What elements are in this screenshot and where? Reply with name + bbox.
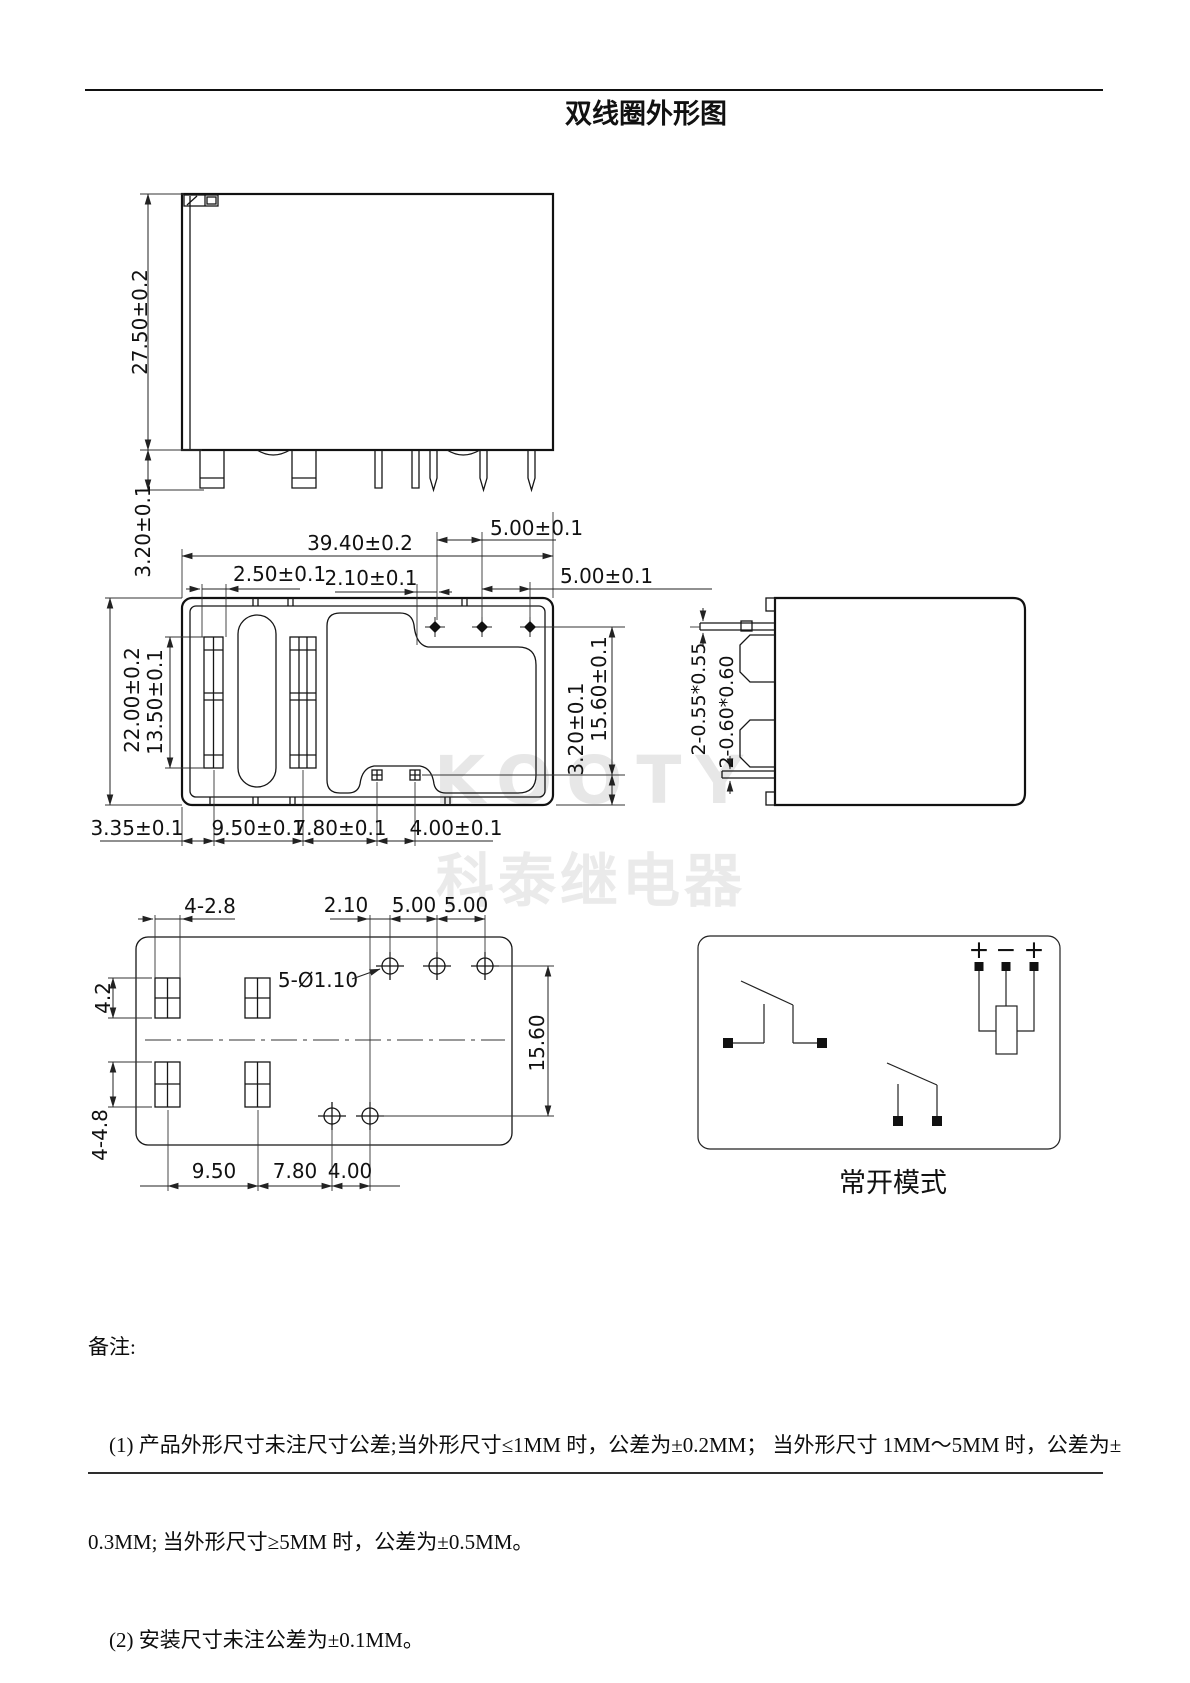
- datasheet-page: KOOTY 科泰继电器 双线圈外形图: [0, 0, 1190, 1683]
- note-line-2: 0.3MM; 当外形尺寸≥5MM 时，公差为±0.5MM。: [88, 1526, 1118, 1559]
- pcb-layout-view: 5-Ø1.10 4-2.8 2.10 5.00 5.00 4.2: [88, 893, 554, 1191]
- terminal-slot-column-1: [204, 637, 223, 768]
- dim-pitch-a: 5.00±0.1: [490, 516, 583, 540]
- dim-depth: 22.00±0.2: [120, 647, 144, 753]
- relay-case-side: [775, 598, 1025, 805]
- dim-335: 3.35±0.1: [90, 816, 183, 840]
- dim-bottom-width: 39.40±0.2: [307, 531, 413, 555]
- dim-front-height: 27.50±0.2: [128, 269, 152, 375]
- dim-pads-bottom: 4-4.8: [88, 1109, 112, 1161]
- square-post-markers: [372, 770, 420, 780]
- relay-case-front: [182, 194, 553, 450]
- dim-edge: 3.20±0.1: [564, 682, 588, 775]
- dim-780: 7.80±0.1: [293, 816, 386, 840]
- coil-symbol: + − +: [969, 935, 1045, 1054]
- dim-pin-large: 2-0.60*0.60: [716, 655, 738, 768]
- notes-label: 备注:: [88, 1331, 1118, 1364]
- side-tab-upper: [740, 635, 775, 682]
- dim-front-standoff: 3.20±0.1: [131, 484, 155, 577]
- dim-pin-small: 2-0.55*0.55: [688, 642, 710, 755]
- coil-slot: [238, 615, 276, 787]
- dim-42: 4.2: [91, 982, 115, 1014]
- notes-block: 备注: (1) 产品外形尺寸未注尺寸公差;当外形尺寸≤1MM 时，公差为±0.2…: [88, 1266, 1118, 1683]
- coil-minus: −: [996, 935, 1017, 964]
- dim-holes: 5-Ø1.10: [278, 968, 358, 992]
- side-pin-large: [722, 771, 775, 778]
- coil-plus-left: +: [969, 935, 990, 964]
- dim-500b: 5.00: [444, 893, 489, 917]
- dim-pcb-950: 9.50: [192, 1159, 237, 1183]
- note-line-1: (1) 产品外形尺寸未注尺寸公差;当外形尺寸≤1MM 时，公差为±0.2MM； …: [88, 1429, 1118, 1462]
- dim-pads-top: 4-2.8: [184, 894, 236, 918]
- bottom-view: 39.40±0.2 5.00±0.1 5.00±0.1 2.50±0.1 2.1…: [90, 512, 712, 846]
- contact-switch-2: [887, 1063, 942, 1126]
- pcb-pads: [155, 978, 270, 1107]
- dim-slot-span: 13.50±0.1: [143, 649, 167, 755]
- coil-plus-right: +: [1024, 935, 1045, 964]
- side-view: 2-0.55*0.55 2-0.60*0.60: [688, 598, 1025, 805]
- dim-pitch-b: 5.00±0.1: [560, 564, 653, 588]
- dim-offset: 2.10±0.1: [324, 566, 417, 590]
- page-title: 双线圈外形图: [565, 99, 727, 129]
- contact-cavity: [327, 613, 536, 793]
- dim-210: 2.10: [324, 893, 369, 917]
- contact-switch-1: [723, 981, 827, 1048]
- terminal-slot-column-2: [290, 637, 316, 768]
- dim-row-span: 15.60±0.1: [587, 636, 611, 742]
- dim-1560: 15.60: [525, 1014, 549, 1071]
- note-line-3: (2) 安装尺寸未注公差为±0.1MM。: [88, 1624, 1118, 1657]
- relay-pins-front: [200, 450, 535, 490]
- side-pin-small: [700, 621, 775, 631]
- locating-cross-markers: [425, 617, 540, 637]
- side-tab-lower: [740, 720, 775, 767]
- dim-500a: 5.00: [392, 893, 437, 917]
- dim-pcb-780: 7.80: [273, 1159, 318, 1183]
- dim-pcb-400: 4.00: [328, 1159, 373, 1183]
- dim-950: 9.50±0.1: [211, 816, 304, 840]
- dim-slot-width: 2.50±0.1: [233, 562, 326, 586]
- dim-400: 4.00±0.1: [409, 816, 502, 840]
- wiring-caption: 常开模式: [839, 1168, 947, 1198]
- wiring-diagram: + − + 常开模式: [698, 935, 1060, 1198]
